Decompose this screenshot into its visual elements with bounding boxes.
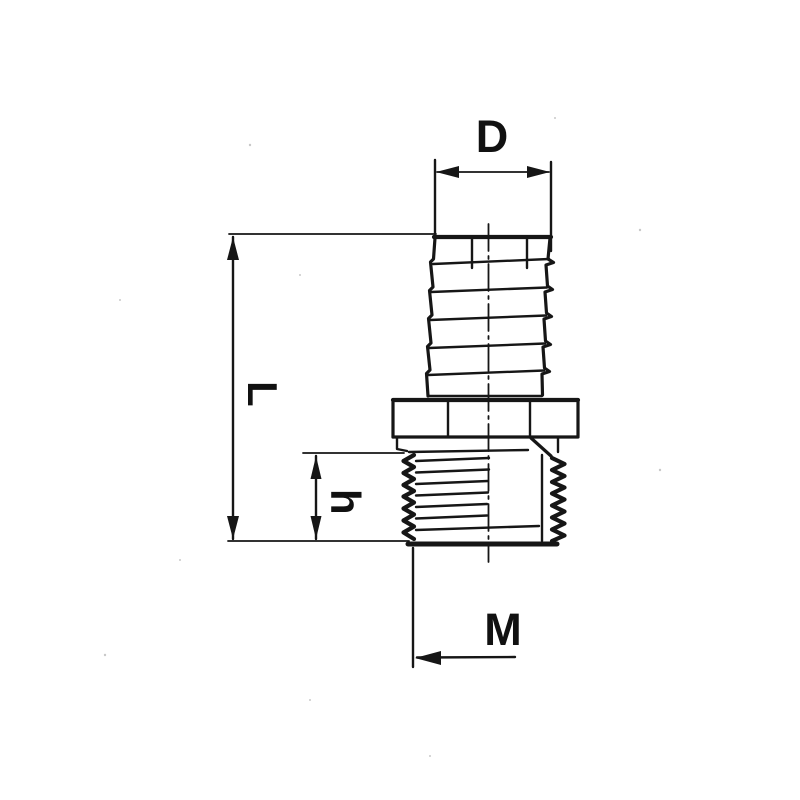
thread-section — [404, 450, 565, 544]
scanned-drawing-page: D L h M — [0, 0, 800, 800]
thread-crest-right — [552, 458, 565, 541]
dimension-label-h: h — [322, 489, 369, 515]
arrowhead-up — [227, 237, 239, 260]
thread-line — [416, 481, 488, 484]
arrowhead-down — [311, 516, 322, 539]
thread-top-edge — [409, 450, 528, 452]
arrowhead-right — [527, 166, 550, 178]
hex-collar — [393, 400, 578, 456]
barb-ridge-line — [429, 344, 545, 349]
thread-chamfer — [531, 438, 551, 456]
technical-drawing: D L h M — [0, 0, 800, 800]
dimension-h: h — [228, 453, 409, 541]
barb-ridge-line — [433, 259, 549, 264]
dimension-label-L: L — [239, 381, 286, 407]
barb-ridge-line — [428, 371, 544, 376]
fitting-outline — [393, 224, 578, 562]
arrowhead-up — [311, 456, 322, 479]
thread-crest-left — [404, 455, 415, 539]
thread-line — [416, 526, 539, 530]
thread-line — [416, 458, 489, 461]
dimension-M: M — [413, 548, 522, 667]
barb-left-edge — [427, 238, 436, 396]
thread-line — [416, 493, 488, 496]
collar-left-lip — [397, 438, 407, 451]
dimension-D: D — [435, 111, 551, 251]
thread-line — [416, 470, 489, 473]
barb-section — [427, 237, 554, 396]
thread-line — [416, 516, 487, 519]
arrowhead-left — [415, 651, 441, 665]
arrowhead-down — [227, 516, 239, 539]
dimension-label-M: M — [484, 604, 522, 655]
thread-line — [416, 504, 487, 507]
arrowhead-left — [436, 166, 459, 178]
dimension-label-D: D — [476, 111, 509, 162]
